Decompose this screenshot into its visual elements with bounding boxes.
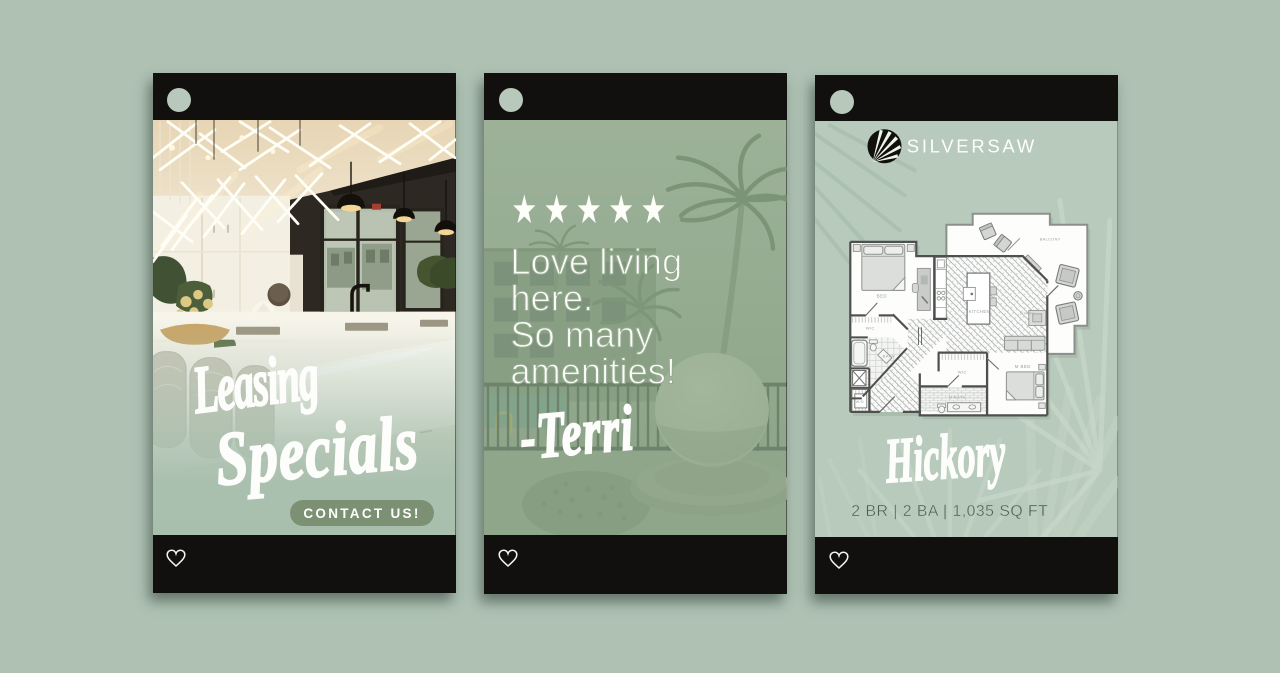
svg-text:M BATH: M BATH (949, 394, 966, 399)
svg-text:BALCONY: BALCONY (1040, 237, 1061, 241)
svg-text:M BED: M BED (1015, 363, 1031, 368)
svg-text:So many: So many (511, 314, 654, 355)
svg-text:W/D: W/D (856, 399, 864, 403)
svg-text:Specials: Specials (212, 399, 422, 502)
svg-text:LIVING: LIVING (1020, 311, 1035, 315)
svg-text:Hickory: Hickory (882, 418, 1008, 496)
svg-text:WIC: WIC (958, 369, 967, 374)
svg-text:2 BR | 2 BA | 1,035 SQ FT: 2 BR | 2 BA | 1,035 SQ FT (851, 503, 1048, 520)
svg-text:KITCHEN: KITCHEN (969, 308, 990, 313)
svg-text:Love living: Love living (511, 241, 683, 282)
svg-text:here.: here. (511, 278, 594, 319)
svg-text:BATH: BATH (883, 353, 895, 358)
svg-text:WIC: WIC (866, 325, 875, 330)
svg-text:amenities!: amenities! (511, 351, 677, 392)
svg-text:BED: BED (877, 293, 887, 298)
svg-text:-Terri: -Terri (517, 393, 637, 474)
svg-text:SILVERSAW: SILVERSAW (907, 135, 1037, 156)
